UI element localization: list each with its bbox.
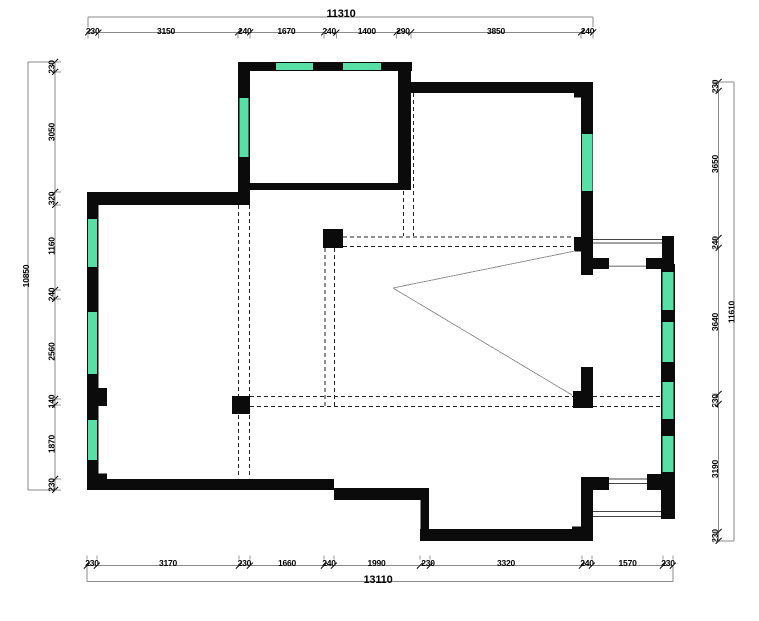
svg-text:3050: 3050: [47, 122, 57, 141]
svg-text:10850: 10850: [21, 264, 31, 287]
svg-text:140: 140: [47, 394, 57, 408]
svg-text:13110: 13110: [364, 574, 393, 586]
svg-text:11610: 11610: [727, 300, 737, 323]
svg-text:3650: 3650: [710, 154, 720, 173]
svg-text:11310: 11310: [327, 8, 356, 20]
svg-text:1400: 1400: [358, 26, 377, 36]
svg-text:3640: 3640: [710, 312, 720, 331]
svg-text:1660: 1660: [278, 558, 297, 568]
svg-text:3150: 3150: [157, 26, 176, 36]
svg-text:3320: 3320: [497, 558, 516, 568]
svg-text:320: 320: [47, 191, 57, 205]
svg-text:1160: 1160: [47, 237, 57, 255]
svg-text:2560: 2560: [47, 342, 57, 361]
svg-text:230: 230: [710, 394, 720, 408]
svg-text:3850: 3850: [487, 26, 506, 36]
svg-text:1670: 1670: [277, 26, 296, 36]
svg-text:3190: 3190: [710, 459, 720, 478]
svg-text:1990: 1990: [367, 558, 386, 568]
svg-text:1870: 1870: [47, 434, 57, 453]
svg-text:1570: 1570: [619, 558, 638, 568]
svg-text:3170: 3170: [159, 558, 178, 568]
